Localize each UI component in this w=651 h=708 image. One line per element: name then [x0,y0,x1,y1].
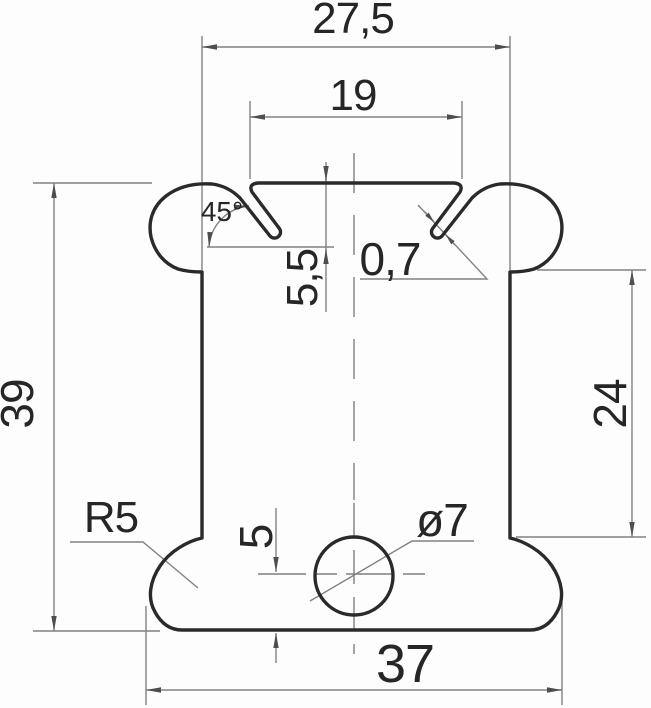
dimension-lines [54,47,632,690]
profile-outline [150,183,562,630]
dim-label-flange-angle: 45° [201,196,243,227]
extension-lines [33,36,646,705]
dim-arrow-thickness-lower [446,235,455,245]
dim-label-thickness: 0,7 [360,233,421,285]
dim-label-hole-offset: 5 [230,525,282,550]
dim-label-bottom-width: 37 [376,634,434,694]
dim-label-flange-depth: 5,5 [278,249,327,307]
drawing-page: 27,5 19 45° 5,5 0,7 39 24 R5 5 ø7 37 [0,0,651,708]
dim-arrow-thickness-upper [425,212,434,222]
dim-label-hole-diameter: ø7 [416,494,468,546]
dim-label-corner-radius: R5 [84,493,138,542]
part-geometry [150,183,562,630]
centerlines [258,153,426,654]
dim-label-overall-height: 39 [0,379,43,428]
dim-label-slot-width: 19 [330,71,377,120]
dim-label-top-width: 27,5 [312,0,394,43]
technical-drawing-canvas: 27,5 19 45° 5,5 0,7 39 24 R5 5 ø7 37 [0,0,651,708]
dim-label-side-height: 24 [584,379,636,429]
